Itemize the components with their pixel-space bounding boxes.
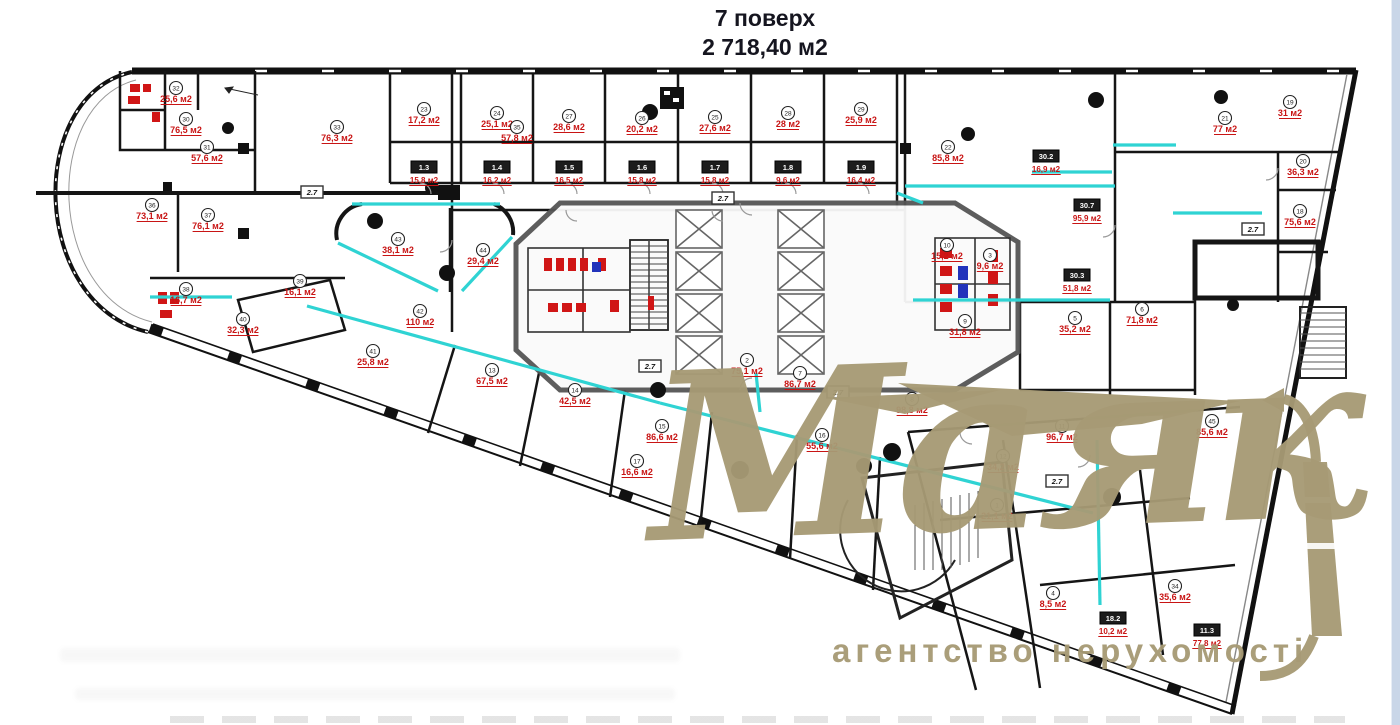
room-label: 2285,8 м2 bbox=[932, 141, 964, 164]
svg-text:24: 24 bbox=[493, 110, 501, 117]
svg-text:42: 42 bbox=[416, 308, 424, 315]
annotation-arrow bbox=[225, 87, 258, 95]
svg-text:20: 20 bbox=[1299, 158, 1307, 165]
svg-text:77 м2: 77 м2 bbox=[1213, 124, 1237, 134]
room-label: 2425,1 м2 bbox=[481, 107, 513, 130]
svg-text:31,8 м2: 31,8 м2 bbox=[949, 327, 981, 337]
room-label: 535,2 м2 bbox=[1059, 312, 1091, 335]
svg-text:86,6 м2: 86,6 м2 bbox=[646, 432, 678, 442]
room-label: 2317,2 м2 bbox=[408, 103, 440, 126]
svg-text:14: 14 bbox=[571, 387, 579, 394]
svg-text:42,5 м2: 42,5 м2 bbox=[559, 396, 591, 406]
svg-text:98,8 м2: 98,8 м2 bbox=[896, 405, 928, 415]
room-label: 4585,6 м2 bbox=[1196, 415, 1228, 438]
svg-text:22: 22 bbox=[944, 144, 952, 151]
svg-text:30.3: 30.3 bbox=[1070, 271, 1085, 280]
svg-text:37: 37 bbox=[204, 212, 212, 219]
room-number-plaque: 1.416,2 м2 bbox=[482, 161, 511, 186]
svg-text:31 м2: 31 м2 bbox=[1278, 108, 1302, 118]
room-label: 1234,2 м2 bbox=[987, 450, 1019, 473]
svg-text:16,6 м2: 16,6 м2 bbox=[621, 467, 653, 477]
floor-plan-svg: 121,1 м2275,1 м239,6 м248,5 м2535,2 м267… bbox=[0, 0, 1400, 725]
svg-text:17: 17 bbox=[633, 458, 641, 465]
svg-text:1.8: 1.8 bbox=[783, 163, 793, 172]
svg-text:16,2 м2: 16,2 м2 bbox=[483, 176, 512, 185]
svg-text:110 м2: 110 м2 bbox=[406, 317, 435, 327]
svg-text:28,6 м2: 28,6 м2 bbox=[553, 122, 585, 132]
svg-text:1.6: 1.6 bbox=[637, 163, 647, 172]
svg-text:7: 7 bbox=[798, 370, 802, 377]
room-label: 1931 м2 bbox=[1278, 96, 1302, 119]
room-label: 4338,1 м2 bbox=[382, 233, 414, 256]
svg-text:27: 27 bbox=[565, 113, 573, 120]
svg-text:9,6 м2: 9,6 м2 bbox=[776, 176, 800, 185]
svg-text:35,2 м2: 35,2 м2 bbox=[1059, 324, 1091, 334]
svg-text:5: 5 bbox=[1073, 315, 1077, 322]
svg-text:8,5 м2: 8,5 м2 bbox=[1040, 599, 1067, 609]
room-label: 48,5 м2 bbox=[1040, 587, 1067, 610]
room-label: 2036,3 м2 bbox=[1287, 155, 1319, 178]
svg-text:9: 9 bbox=[963, 318, 967, 325]
svg-text:19: 19 bbox=[1286, 99, 1294, 106]
svg-text:76,5 м2: 76,5 м2 bbox=[170, 125, 202, 135]
svg-text:16,7 м2: 16,7 м2 bbox=[170, 295, 202, 305]
svg-text:45: 45 bbox=[1208, 418, 1216, 425]
svg-text:2.7: 2.7 bbox=[644, 362, 656, 371]
service-core bbox=[516, 203, 1018, 390]
svg-text:21: 21 bbox=[1221, 115, 1229, 122]
svg-text:55,6 м2: 55,6 м2 bbox=[806, 441, 838, 451]
room-label: 3673,1 м2 bbox=[136, 199, 168, 222]
svg-text:16,9 м2: 16,9 м2 bbox=[1032, 165, 1061, 174]
svg-text:26: 26 bbox=[638, 115, 646, 122]
svg-text:36,3 м2: 36,3 м2 bbox=[1287, 167, 1319, 177]
room-number-plaque: 1.715,8 м2 bbox=[700, 161, 729, 186]
room-number-plaque: 1.916,4 м2 bbox=[846, 161, 875, 186]
svg-text:18: 18 bbox=[1296, 208, 1304, 215]
corridor-marker: 2.7 bbox=[1242, 223, 1264, 235]
svg-text:38: 38 bbox=[182, 286, 190, 293]
svg-text:16,4 м2: 16,4 м2 bbox=[847, 176, 876, 185]
room-number-plaque: 1.615,8 м2 bbox=[627, 161, 656, 186]
svg-text:76,1 м2: 76,1 м2 bbox=[192, 221, 224, 231]
plan-title: 7 поверх 2 718,40 м2 bbox=[565, 4, 965, 62]
room-label: 3776,1 м2 bbox=[192, 209, 224, 232]
svg-text:16,5 м2: 16,5 м2 bbox=[555, 176, 584, 185]
svg-text:1: 1 bbox=[995, 502, 999, 509]
svg-text:86,7 м2: 86,7 м2 bbox=[784, 379, 816, 389]
svg-text:28: 28 bbox=[784, 110, 792, 117]
room-label: 1586,6 м2 bbox=[646, 420, 678, 443]
room-number-plaque: 30.795,9 м2 bbox=[1072, 199, 1101, 224]
corridor-marker: 2.7 bbox=[712, 192, 734, 204]
svg-text:13: 13 bbox=[488, 367, 496, 374]
svg-text:29,4 м2: 29,4 м2 bbox=[467, 256, 499, 266]
svg-text:11.3: 11.3 bbox=[1200, 626, 1214, 635]
svg-text:27,6 м2: 27,6 м2 bbox=[699, 123, 731, 133]
svg-text:25,9 м2: 25,9 м2 bbox=[845, 115, 877, 125]
svg-text:38,1 м2: 38,1 м2 bbox=[382, 245, 414, 255]
svg-text:44: 44 bbox=[479, 247, 487, 254]
svg-text:32: 32 bbox=[172, 85, 180, 92]
room-label: 4032,3 м2 bbox=[227, 313, 259, 336]
room-number-plaque: 11.377,8 м2 bbox=[1192, 624, 1221, 649]
svg-text:57,6 м2: 57,6 м2 bbox=[191, 153, 223, 163]
room-label: 2828 м2 bbox=[776, 107, 800, 130]
svg-text:73,1 м2: 73,1 м2 bbox=[136, 211, 168, 221]
svg-text:77,8 м2: 77,8 м2 bbox=[1193, 639, 1222, 648]
svg-text:12: 12 bbox=[999, 453, 1007, 460]
corridor-marker: 2.7 bbox=[827, 386, 849, 398]
room-number-plaque: 1.516,5 м2 bbox=[554, 161, 583, 186]
floor-area: 2 718,40 м2 bbox=[565, 33, 965, 62]
room-label: 3076,5 м2 bbox=[170, 113, 202, 136]
svg-text:67,5 м2: 67,5 м2 bbox=[476, 376, 508, 386]
svg-text:51,8 м2: 51,8 м2 bbox=[1063, 284, 1092, 293]
room-label: 898,8 м2 bbox=[896, 393, 928, 416]
room-number-plaque: 30.351,8 м2 bbox=[1062, 269, 1091, 294]
svg-text:20,2 м2: 20,2 м2 bbox=[626, 124, 658, 134]
svg-text:29: 29 bbox=[857, 106, 865, 113]
room-label: 3157,6 м2 bbox=[191, 141, 223, 164]
svg-text:35: 35 bbox=[513, 124, 521, 131]
svg-text:15,8 м2: 15,8 м2 bbox=[701, 176, 730, 185]
room-label: 42110 м2 bbox=[406, 305, 435, 328]
svg-text:2.7: 2.7 bbox=[717, 194, 729, 203]
room-label: 671,8 м2 bbox=[1126, 303, 1158, 326]
svg-text:16,1 м2: 16,1 м2 bbox=[284, 287, 316, 297]
svg-text:30: 30 bbox=[182, 116, 190, 123]
corridor-marker: 2.7 bbox=[639, 360, 661, 372]
svg-text:34: 34 bbox=[1171, 583, 1179, 590]
svg-text:43: 43 bbox=[394, 236, 402, 243]
room-label: 1196,7 м2 bbox=[1046, 420, 1078, 443]
room-number-plaque: 18.210,2 м2 bbox=[1098, 612, 1127, 637]
svg-text:2.7: 2.7 bbox=[306, 188, 318, 197]
svg-text:85,8 м2: 85,8 м2 bbox=[932, 153, 964, 163]
svg-text:35,6 м2: 35,6 м2 bbox=[1159, 592, 1191, 602]
room-label: 2925,9 м2 bbox=[845, 103, 877, 126]
svg-text:16: 16 bbox=[818, 432, 826, 439]
svg-text:25: 25 bbox=[711, 114, 719, 121]
svg-text:10: 10 bbox=[943, 242, 951, 249]
svg-text:21,1 м2: 21,1 м2 bbox=[981, 511, 1013, 521]
svg-text:25,1 м2: 25,1 м2 bbox=[481, 119, 513, 129]
svg-text:15,8 м2: 15,8 м2 bbox=[628, 176, 657, 185]
svg-text:11: 11 bbox=[1059, 423, 1066, 430]
corridor-marker: 2.7 bbox=[301, 186, 323, 198]
room-label: 2728,6 м2 bbox=[553, 110, 585, 133]
room-label: 3435,6 м2 bbox=[1159, 580, 1191, 603]
electrical-panel bbox=[660, 87, 684, 109]
room-number-plaque: 1.89,6 м2 bbox=[775, 161, 801, 186]
svg-text:18.2: 18.2 bbox=[1106, 614, 1121, 623]
svg-text:25,8 м2: 25,8 м2 bbox=[357, 357, 389, 367]
svg-text:17,2 м2: 17,2 м2 bbox=[408, 115, 440, 125]
svg-text:30.2: 30.2 bbox=[1039, 152, 1054, 161]
floor-plan-page: 121,1 м2275,1 м239,6 м248,5 м2535,2 м267… bbox=[0, 0, 1400, 725]
svg-text:8: 8 bbox=[910, 396, 914, 403]
floor-title: 7 поверх bbox=[565, 4, 965, 33]
svg-text:41: 41 bbox=[369, 348, 377, 355]
svg-text:95,9 м2: 95,9 м2 bbox=[1073, 214, 1102, 223]
svg-text:2.7: 2.7 bbox=[1051, 477, 1063, 486]
svg-text:1.9: 1.9 bbox=[856, 163, 866, 172]
room-label: 1367,5 м2 bbox=[476, 364, 508, 387]
svg-text:32,3 м2: 32,3 м2 bbox=[227, 325, 259, 335]
svg-text:39: 39 bbox=[296, 278, 304, 285]
svg-text:15,2 м2: 15,2 м2 bbox=[931, 251, 963, 261]
room-label: 4125,8 м2 bbox=[357, 345, 389, 368]
svg-text:31: 31 bbox=[203, 144, 211, 151]
svg-text:1.3: 1.3 bbox=[419, 163, 429, 172]
room-number-plaque: 1.315,8 м2 bbox=[409, 161, 438, 186]
svg-text:4: 4 bbox=[1051, 590, 1055, 597]
svg-text:3: 3 bbox=[988, 252, 992, 259]
svg-text:71,8 м2: 71,8 м2 bbox=[1126, 315, 1158, 325]
room-number-plaque: 30.216,9 м2 bbox=[1031, 150, 1060, 175]
svg-text:1.7: 1.7 bbox=[710, 163, 720, 172]
room-label: 3376,3 м2 bbox=[321, 121, 353, 144]
room-label: 1716,6 м2 bbox=[621, 455, 653, 478]
svg-text:2: 2 bbox=[745, 357, 749, 364]
svg-text:1.4: 1.4 bbox=[492, 163, 503, 172]
svg-text:28 м2: 28 м2 bbox=[776, 119, 800, 129]
svg-text:6: 6 bbox=[1140, 306, 1144, 313]
svg-text:30.7: 30.7 bbox=[1080, 201, 1095, 210]
svg-text:10,2 м2: 10,2 м2 bbox=[1099, 627, 1128, 636]
svg-text:34,2 м2: 34,2 м2 bbox=[987, 462, 1019, 472]
room-label: 2177 м2 bbox=[1213, 112, 1237, 135]
svg-text:1.5: 1.5 bbox=[564, 163, 574, 172]
svg-text:25,6 м2: 25,6 м2 bbox=[160, 94, 192, 104]
svg-text:96,7 м2: 96,7 м2 bbox=[1046, 432, 1078, 442]
svg-text:76,3 м2: 76,3 м2 bbox=[321, 133, 353, 143]
svg-text:33: 33 bbox=[333, 124, 341, 131]
svg-text:75,1 м2: 75,1 м2 bbox=[731, 366, 763, 376]
svg-text:85,6 м2: 85,6 м2 bbox=[1196, 427, 1228, 437]
svg-text:2.7: 2.7 bbox=[832, 388, 844, 397]
svg-text:15: 15 bbox=[658, 423, 666, 430]
svg-text:57,8 м2: 57,8 м2 bbox=[501, 133, 533, 143]
svg-text:15,8 м2: 15,8 м2 bbox=[410, 176, 439, 185]
svg-text:2.7: 2.7 bbox=[1247, 225, 1259, 234]
svg-text:23: 23 bbox=[420, 106, 428, 113]
svg-text:40: 40 bbox=[239, 316, 247, 323]
room-label: 1875,6 м2 bbox=[1284, 205, 1316, 228]
svg-text:36: 36 bbox=[148, 202, 156, 209]
window-edge-strip bbox=[1391, 0, 1400, 725]
svg-text:75,6 м2: 75,6 м2 bbox=[1284, 217, 1316, 227]
room-label: 2527,6 м2 bbox=[699, 111, 731, 134]
svg-text:9,6 м2: 9,6 м2 bbox=[977, 261, 1004, 271]
corridor-marker: 2.7 bbox=[1046, 475, 1068, 487]
